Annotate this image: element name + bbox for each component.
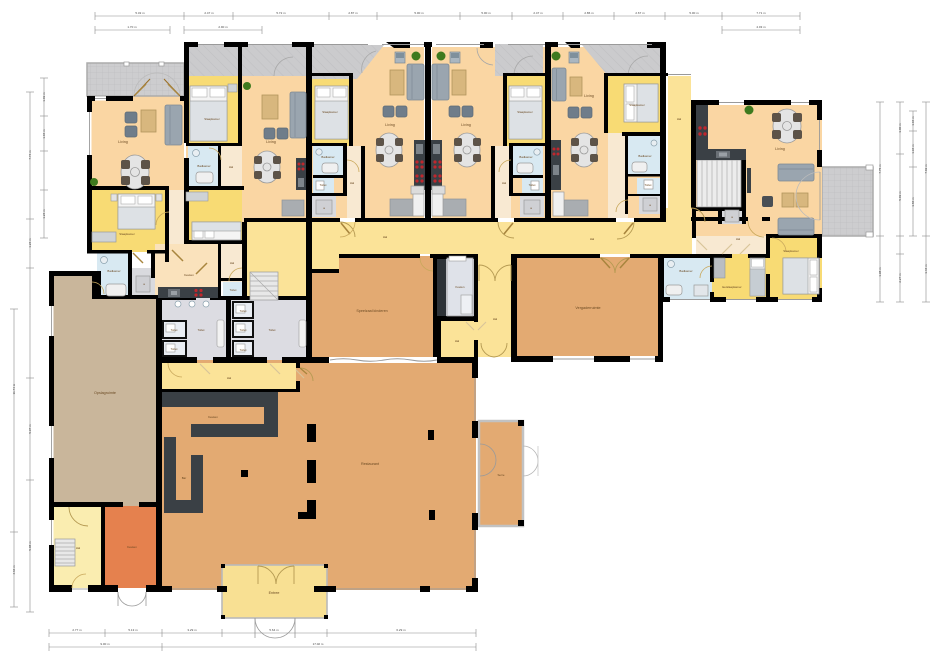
- svg-text:Badkamer: Badkamer: [519, 155, 532, 159]
- svg-text:2.67 m: 2.67 m: [635, 11, 645, 15]
- svg-text:4.03 m: 4.03 m: [756, 25, 766, 29]
- svg-text:1.03 m: 1.03 m: [42, 92, 46, 102]
- svg-text:5.00 m: 5.00 m: [689, 11, 699, 15]
- svg-text:Badkamer: Badkamer: [638, 154, 651, 158]
- svg-text:Hal: Hal: [383, 235, 388, 239]
- svg-text:3.46 m: 3.46 m: [924, 264, 928, 274]
- svg-text:Opslagruimte: Opslagruimte: [94, 391, 116, 395]
- svg-text:5.13 m: 5.13 m: [128, 628, 138, 632]
- svg-text:5.08 m: 5.08 m: [28, 541, 32, 551]
- svg-text:Slaapkamer: Slaapkamer: [204, 117, 219, 121]
- svg-text:Hal: Hal: [502, 181, 507, 185]
- svg-text:Hal: Hal: [230, 261, 235, 265]
- svg-text:Toilet: Toilet: [240, 328, 247, 332]
- svg-text:Hal: Hal: [736, 237, 741, 241]
- svg-text:2.27 m: 2.27 m: [898, 273, 902, 283]
- svg-text:7.71 m: 7.71 m: [756, 11, 766, 15]
- svg-text:Toilet: Toilet: [240, 348, 247, 352]
- svg-text:Toilet: Toilet: [240, 309, 247, 313]
- svg-text:Hal: Hal: [350, 181, 355, 185]
- svg-text:5.00 m: 5.00 m: [481, 11, 491, 15]
- svg-text:3.86 m: 3.86 m: [911, 197, 915, 207]
- svg-text:1.98 m: 1.98 m: [878, 267, 882, 277]
- svg-text:5.03 m: 5.03 m: [898, 191, 902, 201]
- svg-text:2.90 m: 2.90 m: [218, 25, 228, 29]
- svg-text:Toilet: Toilet: [230, 288, 237, 292]
- svg-text:5.72 m: 5.72 m: [276, 11, 286, 15]
- svg-text:5.00 m: 5.00 m: [414, 11, 424, 15]
- svg-text:Living: Living: [584, 94, 594, 98]
- svg-text:Eetslaapkamer: Eetslaapkamer: [722, 285, 741, 289]
- svg-text:1.26 m: 1.26 m: [28, 238, 32, 248]
- svg-text:Hal: Hal: [590, 237, 595, 241]
- svg-text:1.70 m: 1.70 m: [127, 25, 137, 29]
- svg-text:Badkamer: Badkamer: [321, 155, 334, 159]
- svg-text:1.94 m: 1.94 m: [911, 144, 915, 154]
- svg-text:Slaapkamer: Slaapkamer: [783, 249, 798, 253]
- svg-text:Entree: Entree: [269, 591, 280, 595]
- svg-text:2.47 m: 2.47 m: [204, 11, 214, 15]
- svg-text:Slaapkamer: Slaapkamer: [119, 232, 134, 236]
- svg-text:Toilet: Toilet: [529, 183, 536, 187]
- svg-text:Toilet: Toilet: [320, 183, 327, 187]
- svg-text:Living: Living: [775, 147, 785, 151]
- svg-text:Badkamer: Badkamer: [197, 164, 210, 168]
- svg-text:9.00 m: 9.00 m: [100, 642, 110, 646]
- svg-text:Living: Living: [385, 123, 395, 127]
- svg-text:4.66 m: 4.66 m: [12, 565, 16, 575]
- svg-text:Hal: Hal: [677, 117, 682, 121]
- svg-text:Serre: Serre: [497, 473, 504, 477]
- svg-text:Toilet: Toilet: [269, 328, 276, 332]
- svg-text:1.04 m: 1.04 m: [42, 129, 46, 139]
- svg-text:Keuken: Keuken: [127, 545, 137, 549]
- svg-text:Keuken: Keuken: [184, 273, 194, 277]
- svg-text:Koelen: Koelen: [455, 285, 464, 289]
- svg-text:6.29 m: 6.29 m: [396, 628, 406, 632]
- svg-text:1.04 m: 1.04 m: [911, 116, 915, 126]
- svg-text:Toilet: Toilet: [645, 183, 652, 187]
- svg-text:Slaapkamer: Slaapkamer: [517, 110, 532, 114]
- svg-text:2.47 m: 2.47 m: [533, 11, 543, 15]
- svg-text:Vergaderruimte: Vergaderruimte: [575, 306, 600, 310]
- svg-text:2.77 m: 2.77 m: [72, 628, 82, 632]
- svg-text:Hal: Hal: [493, 317, 498, 321]
- svg-text:Hal: Hal: [455, 339, 460, 343]
- svg-text:Toilet: Toilet: [198, 328, 205, 332]
- svg-text:Hal: Hal: [76, 546, 81, 550]
- svg-text:Living: Living: [266, 140, 276, 144]
- svg-text:Toilet: Toilet: [171, 347, 178, 351]
- svg-text:Badkamer: Badkamer: [107, 269, 120, 273]
- svg-text:Keuken: Keuken: [208, 415, 218, 419]
- svg-text:7.74 m: 7.74 m: [28, 150, 32, 160]
- svg-text:Toilet: Toilet: [171, 328, 178, 332]
- svg-text:5.64 m: 5.64 m: [269, 628, 279, 632]
- svg-text:17.02 m: 17.02 m: [313, 642, 324, 646]
- svg-text:1.26 m: 1.26 m: [42, 209, 46, 219]
- svg-text:2.86 m: 2.86 m: [584, 11, 594, 15]
- svg-text:3.00 m: 3.00 m: [898, 123, 902, 133]
- svg-text:Slaapkamer: Slaapkamer: [322, 110, 337, 114]
- svg-text:7.02 m: 7.02 m: [924, 164, 928, 174]
- svg-text:3.29 m: 3.29 m: [187, 628, 197, 632]
- svg-text:Slaapkamer: Slaapkamer: [629, 103, 644, 107]
- svg-text:Bar: Bar: [182, 476, 187, 480]
- svg-text:5.97 m: 5.97 m: [28, 424, 32, 434]
- svg-text:Hal: Hal: [229, 165, 234, 169]
- svg-text:Speelzaal kinderen: Speelzaal kinderen: [356, 309, 387, 313]
- svg-text:2.87 m: 2.87 m: [348, 11, 358, 15]
- svg-text:11.74 m: 11.74 m: [12, 383, 16, 394]
- svg-text:Restaurant: Restaurant: [361, 462, 379, 466]
- svg-text:Living: Living: [118, 140, 128, 144]
- svg-text:Living: Living: [461, 123, 471, 127]
- svg-text:5.32 m: 5.32 m: [135, 11, 145, 15]
- svg-text:7.75 m: 7.75 m: [878, 164, 882, 174]
- svg-text:Badkamer: Badkamer: [679, 269, 692, 273]
- svg-text:Hal: Hal: [227, 376, 232, 380]
